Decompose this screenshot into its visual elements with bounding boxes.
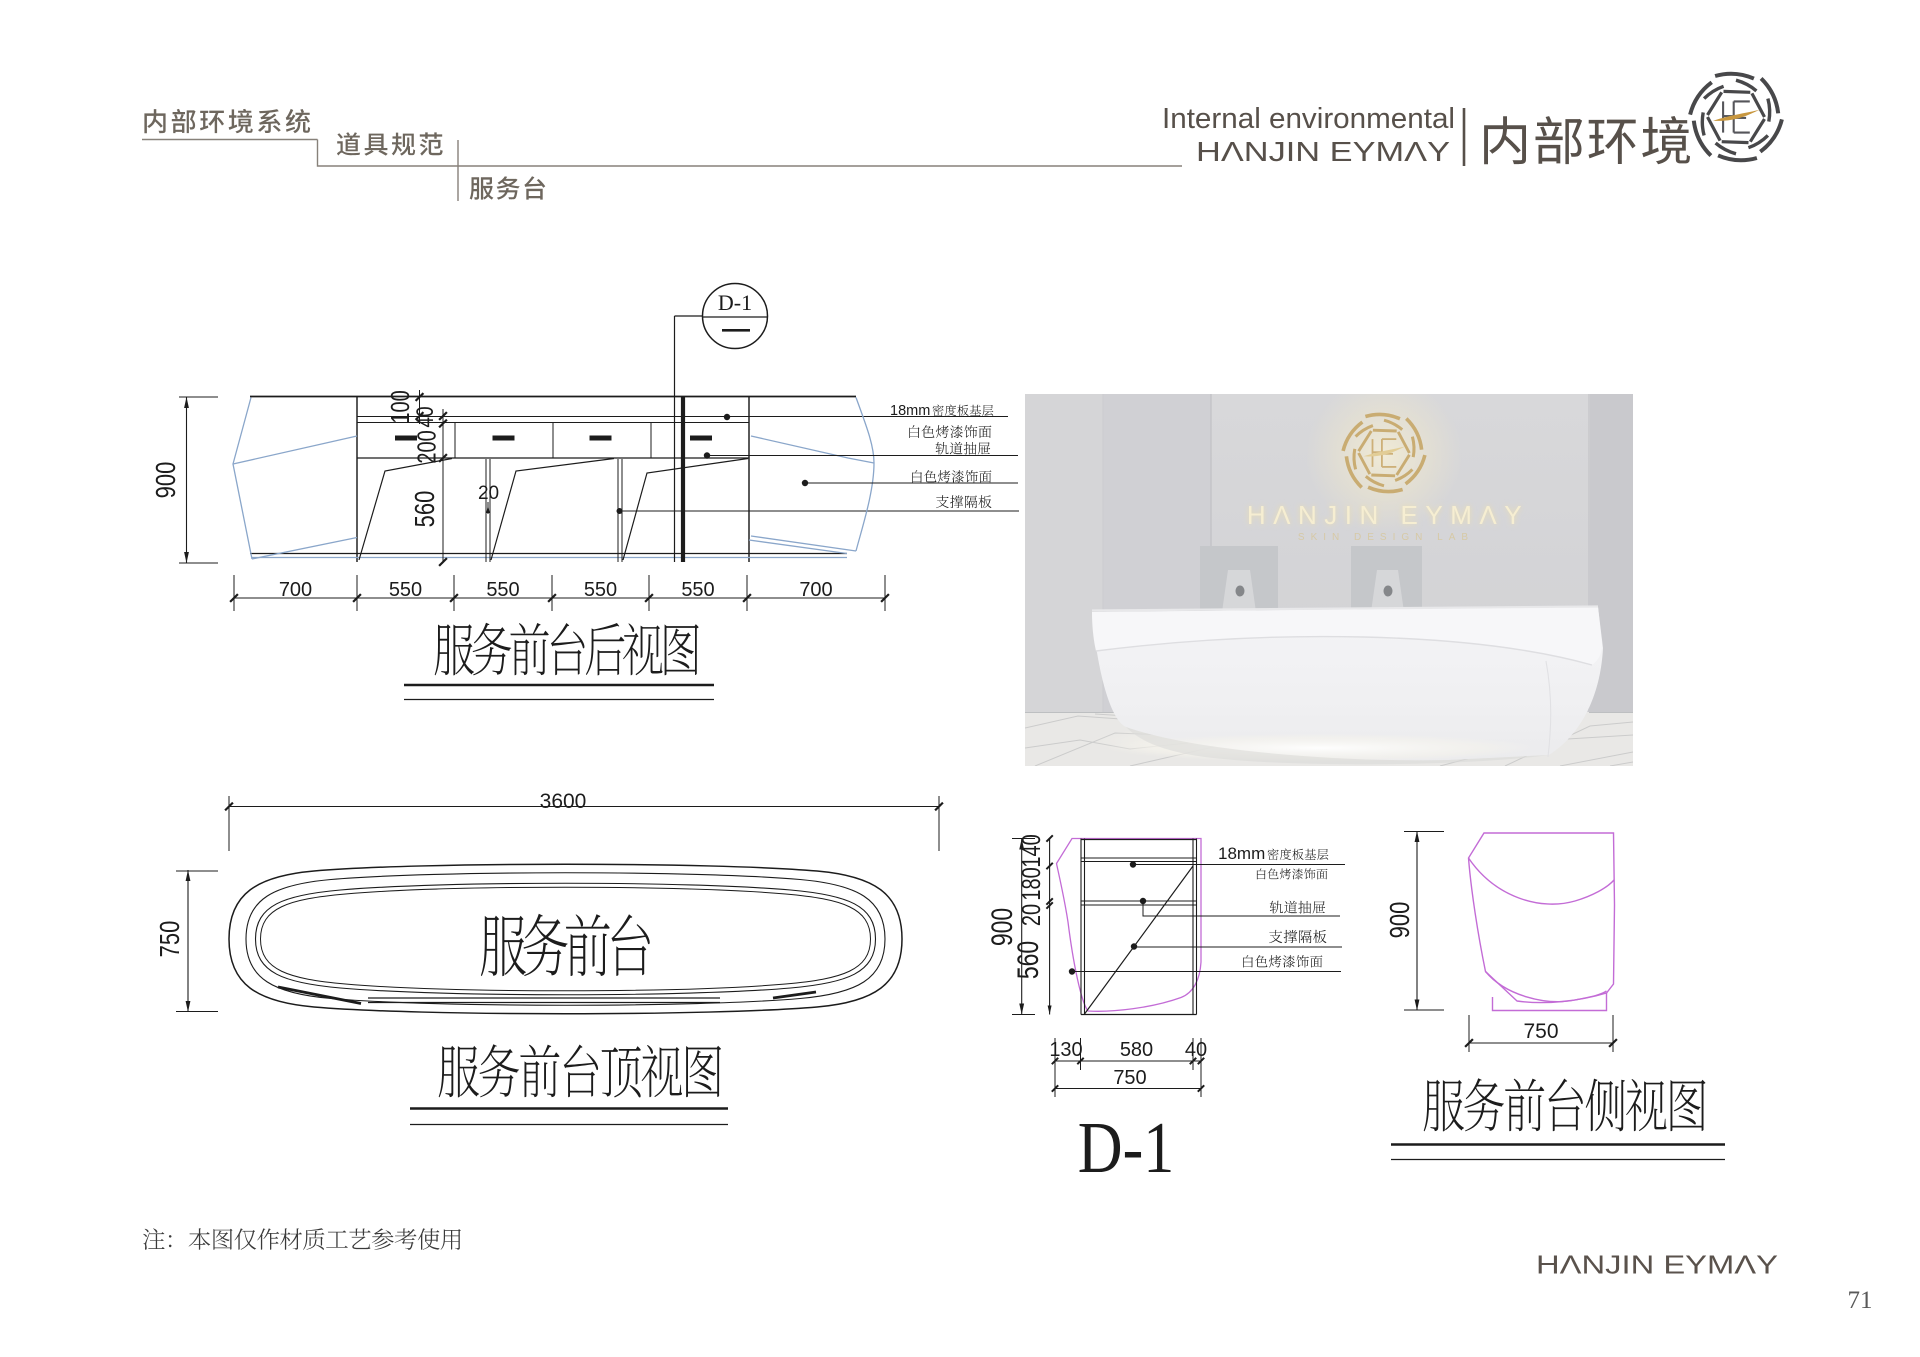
svg-text:18mm: 18mm (890, 403, 930, 419)
svg-text:750: 750 (1523, 1020, 1558, 1043)
svg-text:D-1: D-1 (1078, 1107, 1174, 1188)
svg-text:560: 560 (1011, 941, 1044, 979)
svg-text:Internal environmental: Internal environmental (1162, 103, 1455, 135)
svg-text:700: 700 (279, 579, 312, 601)
svg-text:20: 20 (1017, 904, 1046, 926)
svg-text:900: 900 (150, 462, 181, 499)
svg-text:HΛNJIN EYMΛY: HΛNJIN EYMΛY (1196, 136, 1450, 167)
svg-text:550: 550 (584, 579, 617, 601)
svg-text:550: 550 (389, 579, 422, 601)
svg-text:750: 750 (1113, 1067, 1146, 1089)
svg-text:D-1: D-1 (718, 290, 752, 315)
svg-text:HΛNJIN EYMΛY: HΛNJIN EYMΛY (1247, 500, 1529, 530)
svg-text:3600: 3600 (540, 790, 587, 813)
svg-text:200: 200 (412, 430, 441, 463)
svg-text:71: 71 (1848, 1287, 1873, 1314)
svg-text:180: 180 (1017, 867, 1046, 900)
svg-text:130: 130 (1049, 1039, 1082, 1061)
svg-text:HΛNJIN EYMΛY: HΛNJIN EYMΛY (1536, 1250, 1778, 1280)
svg-text:700: 700 (799, 579, 832, 601)
svg-text:550: 550 (486, 579, 519, 601)
svg-text:40: 40 (1185, 1039, 1207, 1061)
svg-text:550: 550 (681, 579, 714, 601)
svg-text:750: 750 (154, 921, 185, 958)
svg-text:20: 20 (478, 483, 499, 504)
svg-text:560: 560 (409, 491, 440, 528)
svg-text:18mm: 18mm (1218, 844, 1265, 863)
svg-text:580: 580 (1120, 1039, 1153, 1061)
svg-text:140: 140 (1017, 834, 1046, 867)
svg-text:SKIN DESIGN LAB: SKIN DESIGN LAB (1298, 532, 1474, 543)
svg-text:40: 40 (411, 406, 439, 427)
svg-text:900: 900 (1384, 902, 1415, 939)
